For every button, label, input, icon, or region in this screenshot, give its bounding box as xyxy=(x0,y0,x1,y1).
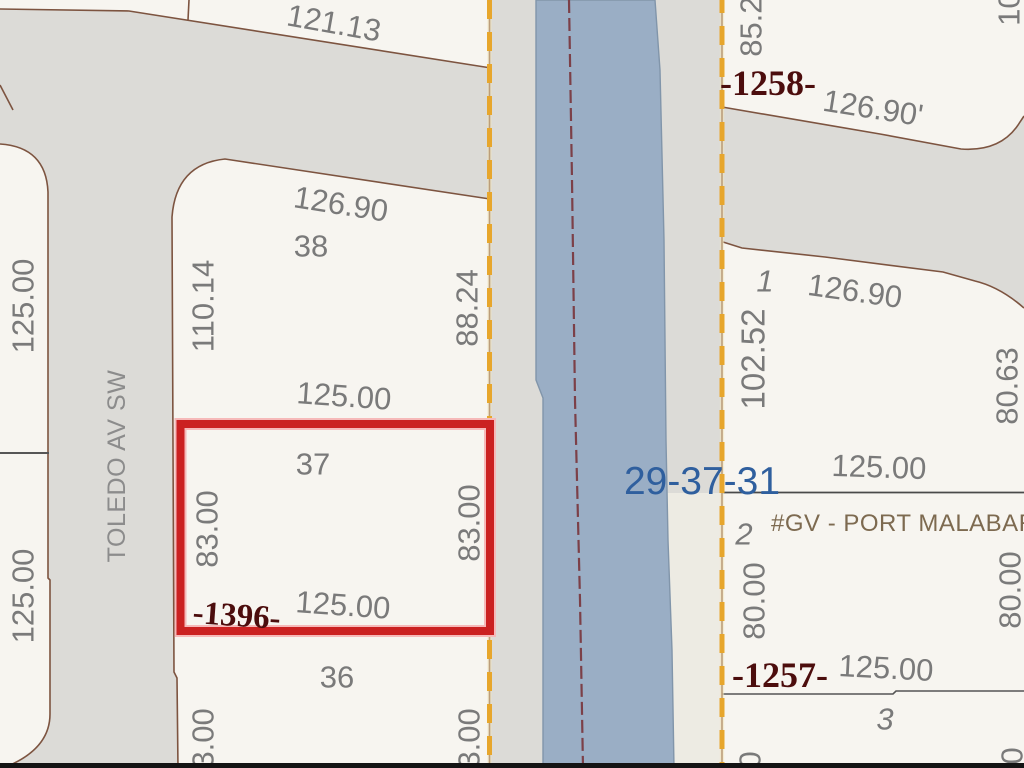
svg-text:38: 38 xyxy=(294,229,328,264)
svg-text:#GV - PORT MALABAR: #GV - PORT MALABAR xyxy=(771,510,1024,537)
svg-text:-1258-: -1258- xyxy=(720,63,816,103)
svg-text:88.24: 88.24 xyxy=(450,269,485,347)
svg-text:80.63: 80.63 xyxy=(990,347,1024,425)
svg-text:125.00: 125.00 xyxy=(6,259,41,354)
svg-text:2: 2 xyxy=(734,517,752,552)
svg-text:36: 36 xyxy=(320,660,354,695)
svg-text:83.00: 83.00 xyxy=(452,484,487,562)
svg-text:125.00: 125.00 xyxy=(838,648,935,688)
svg-text:83.00: 83.00 xyxy=(452,708,487,768)
svg-text:125.00: 125.00 xyxy=(295,375,392,417)
svg-text:29-37-31: 29-37-31 xyxy=(624,460,780,503)
svg-text:83.00: 83.00 xyxy=(186,708,221,768)
svg-text:102.52: 102.52 xyxy=(735,309,772,410)
svg-text:125.00: 125.00 xyxy=(6,549,41,644)
svg-text:1: 1 xyxy=(756,264,773,299)
svg-text:-1257-: -1257- xyxy=(732,655,828,695)
svg-text:TOLEDO AV SW: TOLEDO AV SW xyxy=(103,370,131,563)
svg-text:80.00: 80.00 xyxy=(737,562,772,640)
svg-text:83.00: 83.00 xyxy=(190,490,225,568)
svg-text:85.24: 85.24 xyxy=(734,0,769,57)
svg-text:125.00: 125.00 xyxy=(831,448,927,486)
svg-text:100: 100 xyxy=(992,0,1024,26)
svg-text:-1396-: -1396- xyxy=(192,595,282,637)
svg-text:80.00: 80.00 xyxy=(993,551,1024,629)
svg-text:37: 37 xyxy=(296,447,330,482)
svg-text:110.14: 110.14 xyxy=(186,260,221,353)
svg-text:3: 3 xyxy=(876,702,893,737)
svg-text:125.00: 125.00 xyxy=(294,584,391,626)
